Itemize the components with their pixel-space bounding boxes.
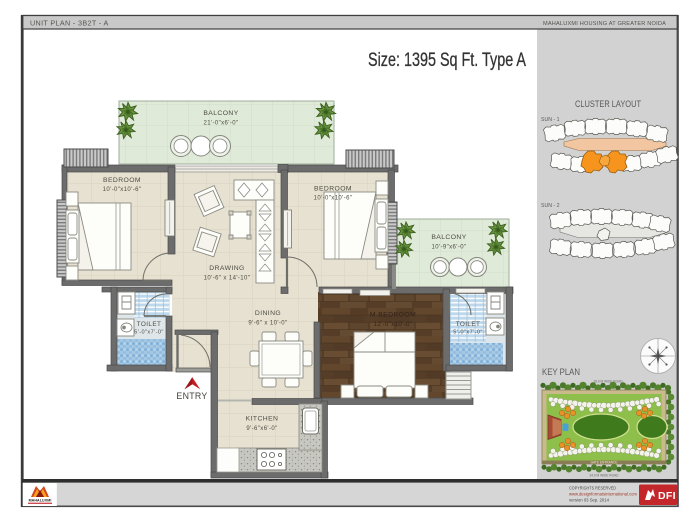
svg-text:18.0 M WIDE ROAD: 18.0 M WIDE ROAD bbox=[593, 380, 623, 384]
svg-text:BALCONY: BALCONY bbox=[203, 110, 238, 117]
svg-text:KITCHEN: KITCHEN bbox=[246, 416, 279, 423]
svg-text:24.0 M WIDE ROAD: 24.0 M WIDE ROAD bbox=[589, 474, 619, 478]
svg-text:SUN - 1: SUN - 1 bbox=[541, 117, 560, 123]
svg-text:www.designformatsinternational: www.designformatsinternational.com bbox=[569, 492, 637, 497]
svg-text:ENTRY: ENTRY bbox=[176, 391, 207, 401]
svg-text:KEY PLAN: KEY PLAN bbox=[542, 367, 580, 377]
svg-text:version 03 Sep. 2014: version 03 Sep. 2014 bbox=[569, 498, 610, 503]
svg-text:UNIT PLAN - 3B2T - A: UNIT PLAN - 3B2T - A bbox=[30, 19, 109, 28]
svg-text:DINING: DINING bbox=[255, 310, 281, 317]
svg-text:5'-0"x7'-0": 5'-0"x7'-0" bbox=[134, 330, 163, 336]
svg-text:10'-0"x10'-6": 10'-0"x10'-6" bbox=[314, 196, 353, 202]
svg-text:BEDROOM: BEDROOM bbox=[314, 186, 352, 193]
svg-text:9'-6" x 10'-0": 9'-6" x 10'-0" bbox=[248, 321, 287, 327]
svg-text:COPYRIGHTS RESERVED: COPYRIGHTS RESERVED bbox=[569, 486, 616, 491]
svg-text:DRAWING: DRAWING bbox=[209, 265, 244, 272]
svg-text:21'-0"x6'-0": 21'-0"x6'-0" bbox=[203, 121, 238, 127]
svg-text:BEDROOM: BEDROOM bbox=[103, 177, 141, 184]
svg-text:MAHALUXMI: MAHALUXMI bbox=[29, 499, 52, 503]
svg-text:10'-9"x6'-0": 10'-9"x6'-0" bbox=[431, 245, 466, 251]
svg-text:9'-6"x6'-0": 9'-6"x6'-0" bbox=[246, 426, 277, 432]
svg-text:BALCONY: BALCONY bbox=[431, 234, 466, 241]
svg-text:CLUSTER LAYOUT: CLUSTER LAYOUT bbox=[575, 99, 642, 109]
svg-text:10'-6" x 14'-10": 10'-6" x 14'-10" bbox=[204, 276, 251, 282]
svg-text:M.BEDROOM: M.BEDROOM bbox=[370, 312, 416, 319]
svg-text:12'-0"x10'-0": 12'-0"x10'-0" bbox=[374, 322, 413, 328]
svg-text:5'-0"x7'-0": 5'-0"x7'-0" bbox=[453, 330, 482, 336]
svg-text:10'-0"x10'-6": 10'-0"x10'-6" bbox=[103, 187, 142, 193]
svg-text:TOILET: TOILET bbox=[137, 321, 162, 328]
svg-text:MAHALUXMI HOUSING AT GREATER N: MAHALUXMI HOUSING AT GREATER NOIDA bbox=[543, 21, 666, 27]
svg-text:TOILET: TOILET bbox=[456, 321, 481, 328]
svg-text:SUN - 2: SUN - 2 bbox=[541, 203, 560, 209]
svg-text:Size: 1395 Sq Ft. Type A: Size: 1395 Sq Ft. Type A bbox=[368, 50, 526, 71]
svg-text:DFI: DFI bbox=[658, 490, 676, 502]
